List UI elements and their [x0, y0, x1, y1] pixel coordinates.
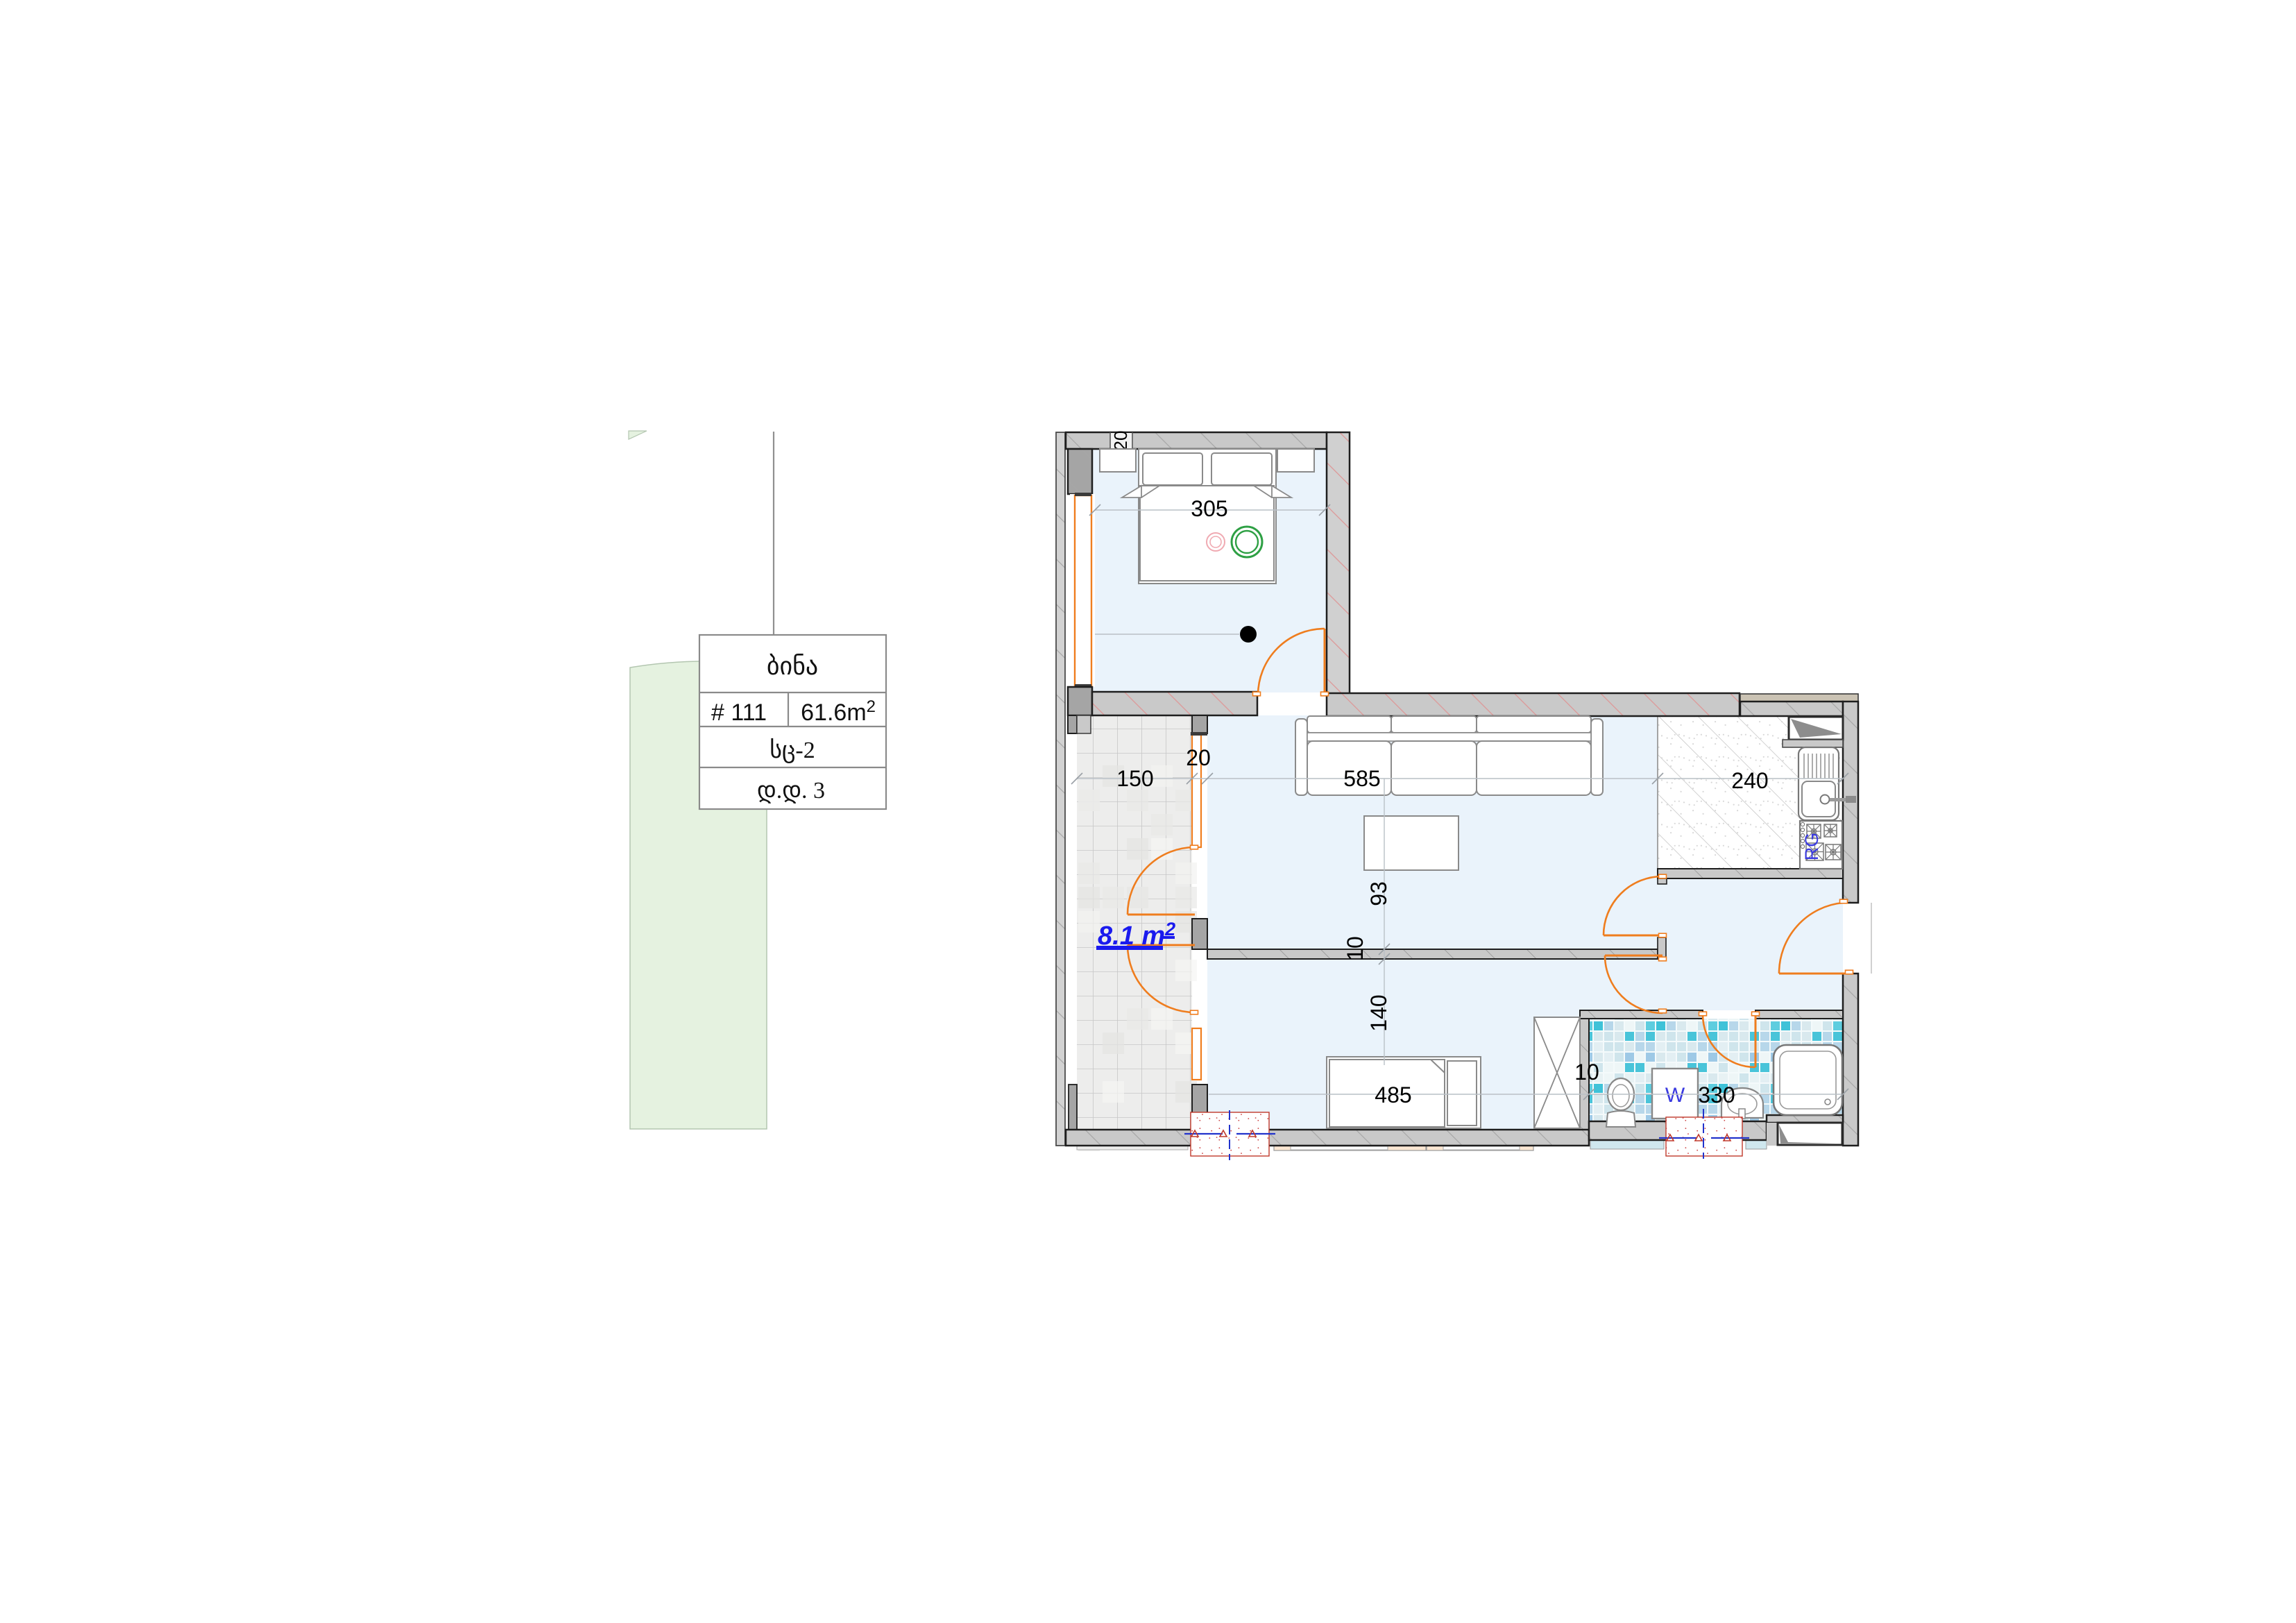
svg-text:140: 140 — [1366, 994, 1391, 1031]
svg-text:RG: RG — [1801, 833, 1822, 861]
svg-text:სც-2: სც-2 — [769, 738, 815, 764]
svg-text:585: 585 — [1343, 766, 1380, 791]
svg-text:150: 150 — [1116, 766, 1153, 791]
svg-text:93: 93 — [1366, 881, 1391, 906]
svg-text:20: 20 — [1110, 431, 1131, 451]
svg-text:# 111: # 111 — [711, 699, 767, 726]
svg-text:10: 10 — [1343, 936, 1368, 961]
svg-text:485: 485 — [1375, 1082, 1411, 1107]
svg-text:ბინა: ბინა — [767, 652, 818, 680]
svg-text:W: W — [1665, 1084, 1685, 1107]
svg-text:240: 240 — [1731, 768, 1768, 793]
svg-text:10: 10 — [1574, 1060, 1599, 1085]
svg-text:330: 330 — [1698, 1082, 1735, 1107]
svg-text:20: 20 — [1186, 745, 1211, 770]
svg-text:დ.დ. 3: დ.დ. 3 — [757, 778, 825, 804]
svg-text:61.6m2: 61.6m2 — [801, 697, 876, 726]
svg-text:305: 305 — [1191, 496, 1227, 521]
